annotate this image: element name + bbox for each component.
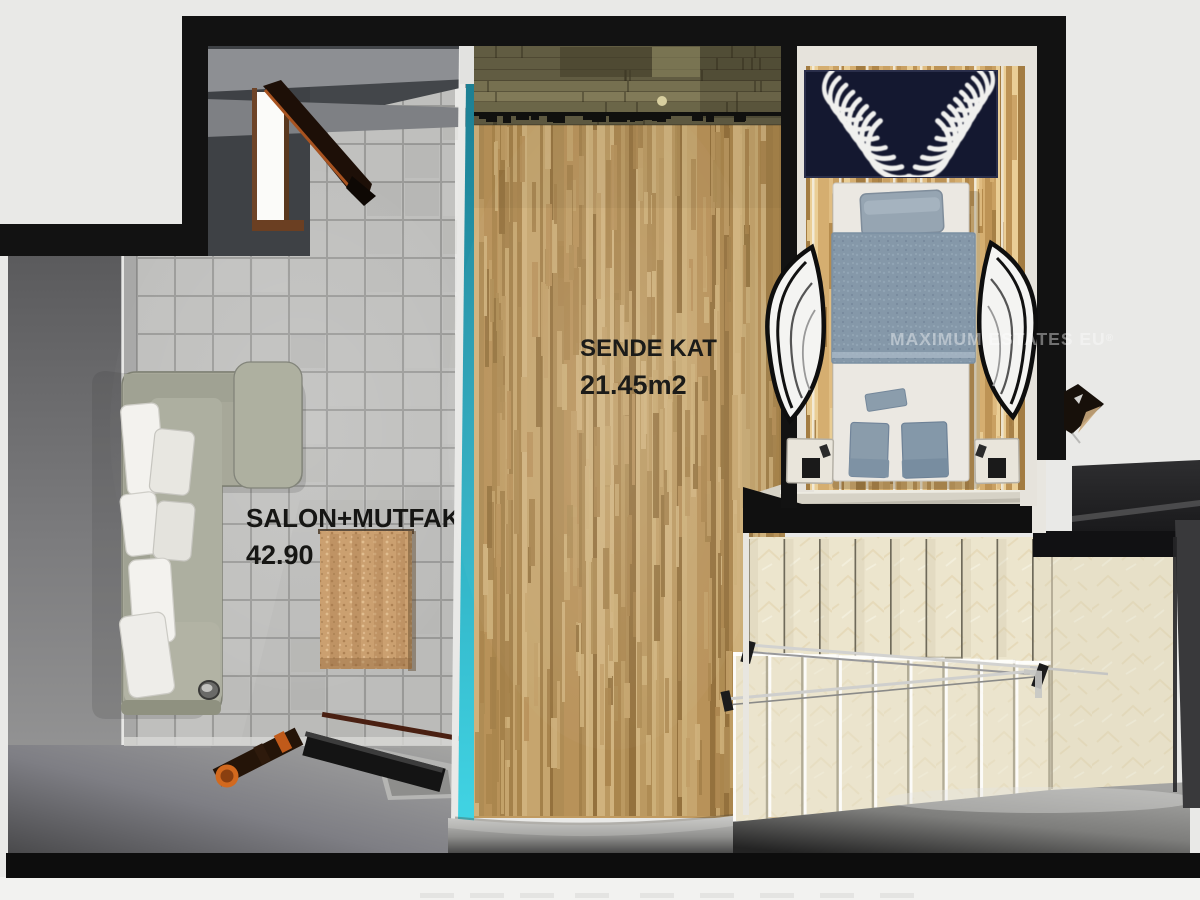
svg-text:42.90: 42.90 bbox=[246, 540, 314, 570]
svg-text:SENDE KAT: SENDE KAT bbox=[580, 335, 717, 362]
svg-text:21.45m2: 21.45m2 bbox=[580, 370, 687, 400]
svg-text:SALON+MUTFAK: SALON+MUTFAK bbox=[246, 503, 461, 533]
svg-text:MAXIMUM ESTATES EU®: MAXIMUM ESTATES EU® bbox=[890, 329, 1114, 349]
